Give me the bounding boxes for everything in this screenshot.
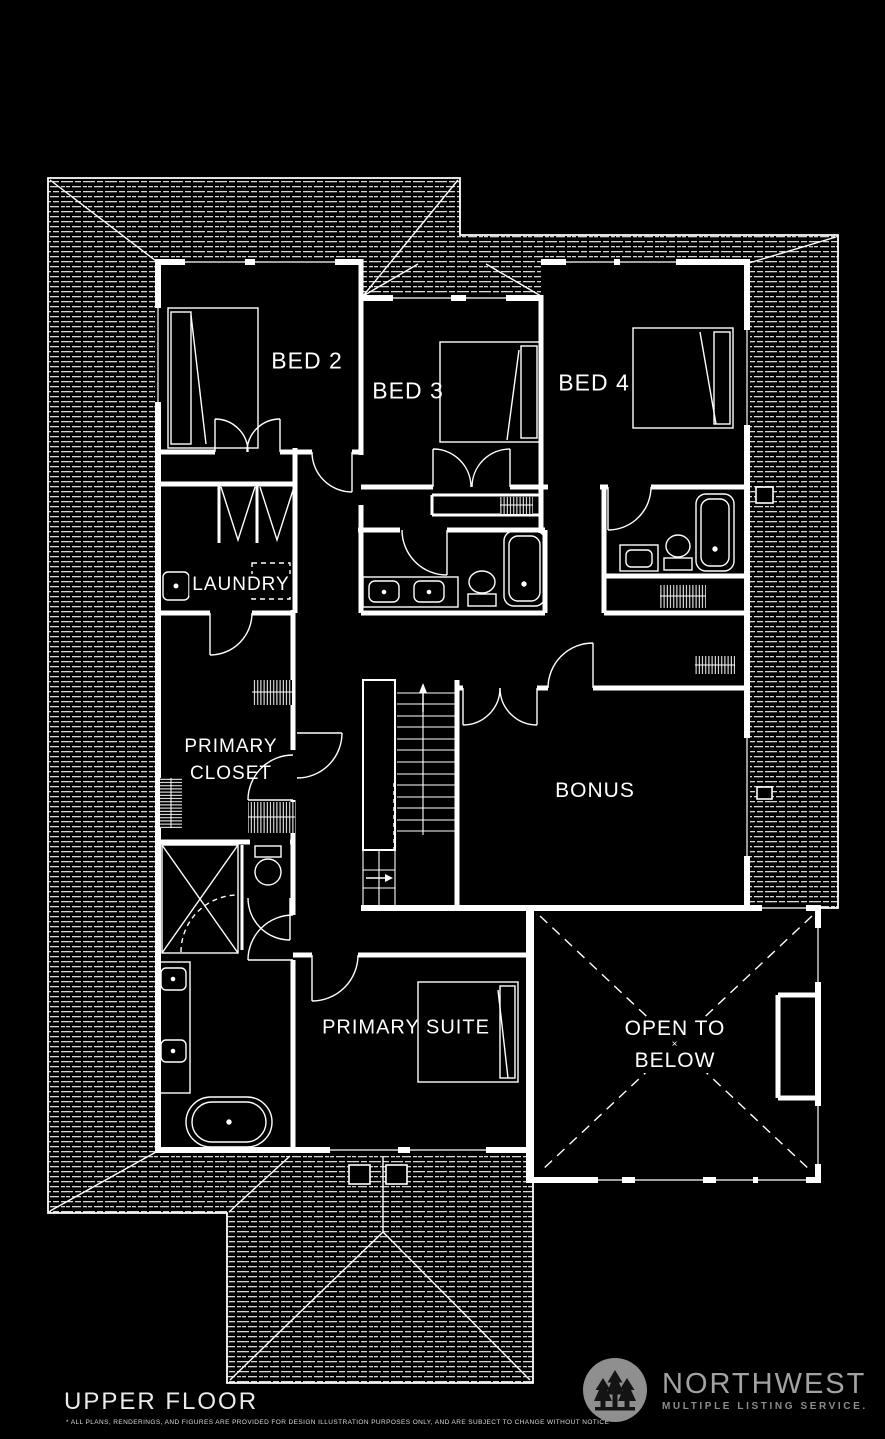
logo-tagline: MULTIPLE LISTING SERVICE.: [662, 1401, 868, 1412]
shower: [162, 845, 238, 953]
floor-plan-page: BED 2 BED 3 BED 4 LAUNDRY PRIMARY CLOSET…: [0, 0, 885, 1439]
room-label-open-to-below: OPEN TO × BELOW: [622, 1017, 729, 1073]
freestanding-tub: [186, 1097, 272, 1147]
roof-vents: [349, 487, 773, 1184]
pine-trees-icon: [582, 1356, 648, 1424]
room-label-bonus: BONUS: [555, 779, 635, 803]
room-label-primary-closet: PRIMARY CLOSET: [184, 733, 277, 787]
floor-plan-drawing: [0, 0, 885, 1439]
doors: [181, 419, 651, 1001]
bed4-bed: [633, 328, 733, 428]
center-x-mark: ×: [625, 1041, 726, 1049]
room-label-laundry: LAUNDRY: [189, 574, 292, 596]
toilet: [255, 859, 281, 885]
disclaimer-text: * ALL PLANS, RENDERINGS, AND FIGURES ARE…: [66, 1419, 609, 1426]
logo-name: NORTHWEST: [662, 1369, 868, 1399]
bed2-bed: [168, 308, 258, 448]
room-label-bed3: BED 3: [372, 378, 443, 405]
nwmls-logo-text: NORTHWEST MULTIPLE LISTING SERVICE.: [662, 1369, 868, 1412]
room-label-primary-suite: PRIMARY SUITE: [322, 1017, 490, 1040]
bed3-bed: [440, 342, 540, 442]
staircase: [363, 680, 457, 906]
nwmls-logo: NORTHWEST MULTIPLE LISTING SERVICE.: [582, 1356, 868, 1424]
room-label-bed2: BED 2: [271, 348, 342, 375]
page-title: UPPER FLOOR: [64, 1388, 258, 1416]
room-label-bed4: BED 4: [558, 370, 629, 397]
